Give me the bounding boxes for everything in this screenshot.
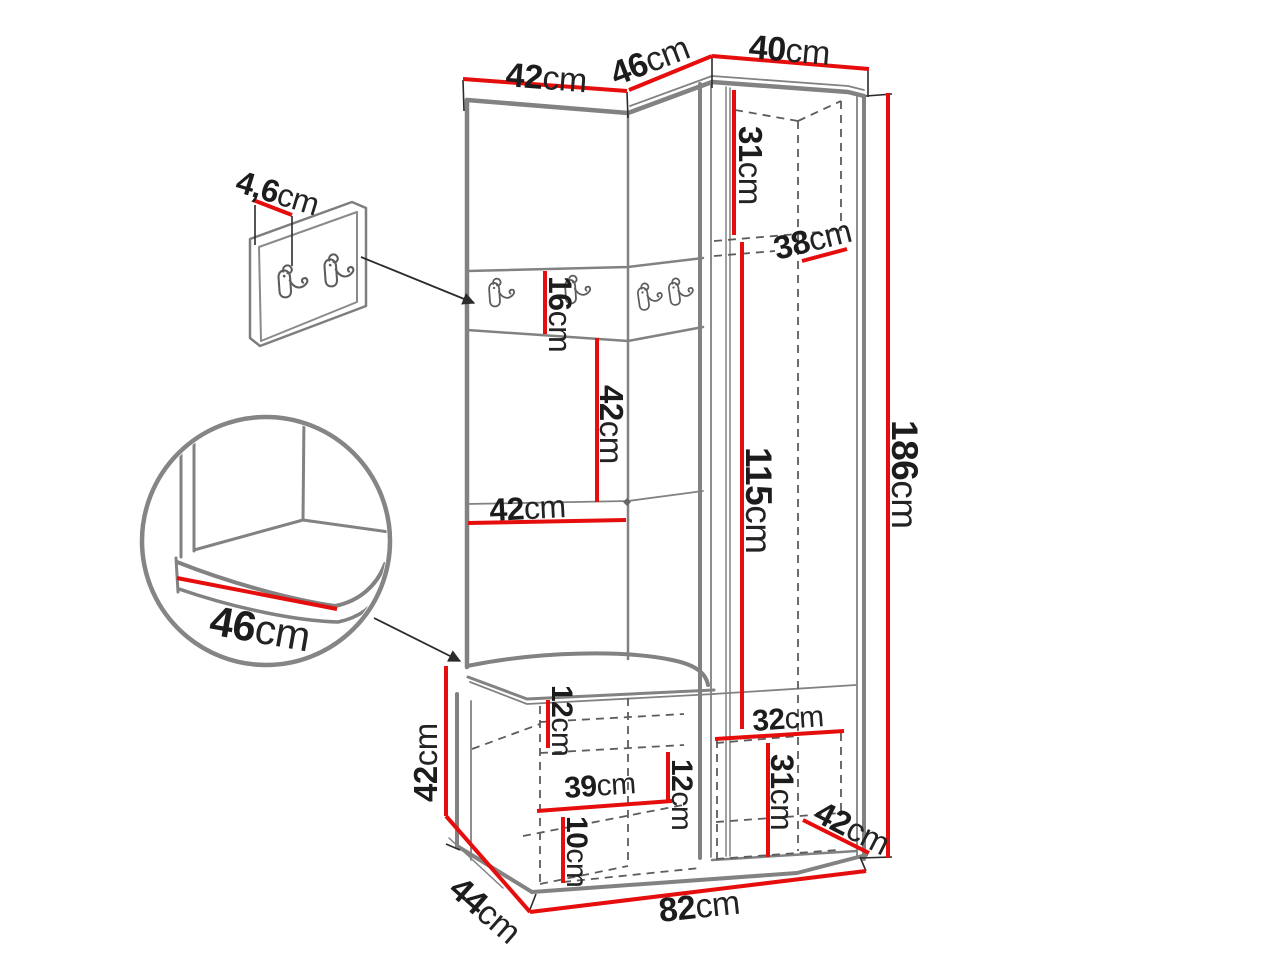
dim-label-top-width-right: 40cm <box>747 28 831 73</box>
dim-label-cabinet-inner-bottom-height: 31cm <box>764 754 800 830</box>
dim-label-bench-inner-top: 12cm <box>545 685 578 756</box>
dim-label-total-height: 186cm <box>884 420 925 529</box>
dim-label-hook-strip-height: 16cm <box>542 276 578 352</box>
dim-label-bench-inner-mid: 12cm <box>665 759 698 830</box>
diagram-stage: 42cm 46cm 40cm 4,6cm 16cm 31cm 38cm 42cm… <box>0 0 1280 960</box>
dim-label-bench-height: 42cm <box>407 723 444 802</box>
dim-label-bench-inner-width: 39cm <box>563 767 637 805</box>
dim-label-cabinet-inner-width: 32cm <box>751 700 825 738</box>
dim-label-mid-panel-width: 42cm <box>488 488 566 528</box>
dim-label-top-width-left: 42cm <box>504 56 588 100</box>
dim-label-bench-inner-bottom: 10cm <box>560 816 593 887</box>
furniture-dimension-diagram: 42cm 46cm 40cm 4,6cm 16cm 31cm 38cm 42cm… <box>0 0 1280 960</box>
dim-label-top-inner-height: 31cm <box>732 126 769 205</box>
dim-label-mid-panel-height: 42cm <box>593 385 630 464</box>
dim-label-door-inner-height: 115cm <box>738 447 779 554</box>
